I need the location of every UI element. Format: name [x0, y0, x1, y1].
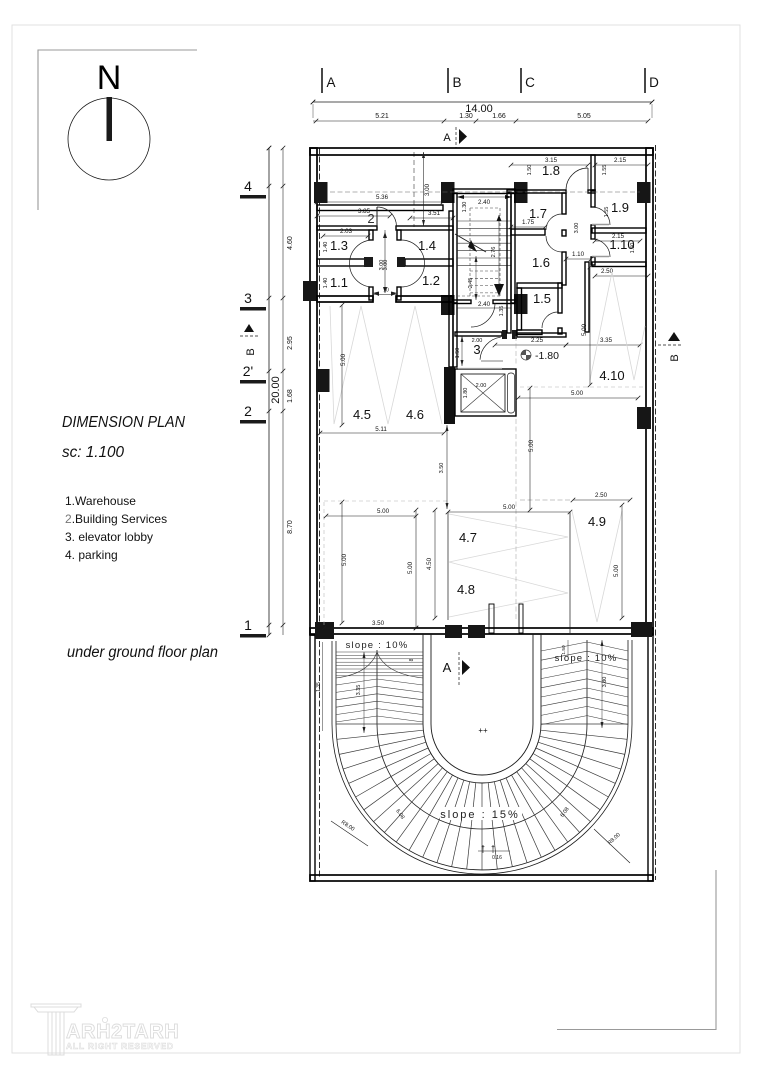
svg-text:B: B	[245, 348, 257, 355]
svg-text:5.00: 5.00	[528, 439, 535, 452]
svg-text:ARH2TARH: ARH2TARH	[66, 1021, 179, 1043]
svg-text:8: 8	[409, 658, 415, 661]
svg-text:3.35: 3.35	[356, 685, 362, 696]
svg-text:++: ++	[478, 726, 488, 735]
svg-text:3.50: 3.50	[439, 463, 445, 474]
svg-text:2.95: 2.95	[287, 336, 294, 350]
svg-text:slope : 10%: slope : 10%	[346, 640, 409, 651]
svg-text:2.00: 2.00	[472, 338, 483, 344]
svg-text:5.00: 5.00	[341, 553, 348, 566]
svg-text:1.30: 1.30	[459, 113, 473, 120]
svg-text:4.9: 4.9	[588, 514, 606, 529]
svg-text:2.Building Services: 2.Building Services	[65, 512, 167, 526]
svg-text:slope : 15%: slope : 15%	[440, 809, 519, 821]
svg-text:3.00: 3.00	[383, 260, 389, 271]
svg-text:1.40: 1.40	[323, 242, 329, 253]
svg-text:3: 3	[473, 342, 480, 357]
svg-text:1.5: 1.5	[533, 291, 551, 306]
svg-text:2.25: 2.25	[531, 337, 544, 344]
svg-text:1.50: 1.50	[561, 645, 567, 655]
svg-text:B: B	[669, 354, 681, 361]
svg-text:A: A	[443, 660, 452, 675]
svg-text:2.45: 2.45	[468, 278, 474, 289]
svg-text:2.15: 2.15	[612, 233, 625, 240]
svg-text:5.00: 5.00	[377, 508, 390, 515]
svg-text:2.40: 2.40	[478, 301, 491, 308]
svg-text:1.35: 1.35	[316, 682, 322, 692]
svg-text:4.50: 4.50	[426, 557, 433, 570]
svg-text:N: N	[97, 59, 122, 97]
svg-text:1.1: 1.1	[330, 275, 348, 290]
svg-text:A: A	[443, 132, 451, 144]
svg-text:3. elevator lobby: 3. elevator lobby	[65, 530, 153, 544]
svg-text:2.03: 2.03	[340, 228, 353, 235]
svg-text:A: A	[326, 75, 335, 90]
svg-text:2.76: 2.76	[491, 247, 497, 258]
svg-text:10: 10	[383, 288, 389, 294]
svg-text:4.5: 4.5	[353, 407, 371, 422]
svg-text:3: 3	[244, 290, 252, 306]
svg-text:2.50: 2.50	[595, 492, 608, 499]
svg-text:4. parking: 4. parking	[65, 548, 118, 562]
svg-text:3.50: 3.50	[372, 620, 385, 627]
svg-text:1.3: 1.3	[330, 238, 348, 253]
svg-text:+: +	[491, 845, 495, 851]
svg-text:5.00: 5.00	[340, 353, 347, 366]
svg-text:1.40: 1.40	[323, 278, 329, 289]
svg-text:1.50: 1.50	[527, 165, 533, 176]
svg-text:8.70: 8.70	[287, 520, 294, 534]
svg-text:3.00: 3.00	[424, 183, 431, 196]
svg-text:5.36: 5.36	[376, 194, 389, 201]
svg-text:ALL RIGHT RESERVED: ALL RIGHT RESERVED	[66, 1041, 174, 1051]
svg-text:3.80: 3.80	[602, 677, 608, 688]
svg-text:5.21: 5.21	[375, 113, 389, 120]
svg-text:5.11: 5.11	[375, 426, 387, 433]
svg-text:-1.80: -1.80	[535, 350, 559, 362]
svg-text:3.51: 3.51	[428, 210, 441, 217]
svg-text:1.9: 1.9	[611, 200, 629, 215]
svg-text:3.85: 3.85	[358, 208, 371, 215]
svg-text:1.55: 1.55	[602, 165, 608, 176]
svg-text:3.35: 3.35	[600, 337, 613, 344]
svg-text:20.00: 20.00	[270, 376, 282, 404]
svg-text:1.68: 1.68	[287, 389, 294, 403]
svg-text:C: C	[525, 75, 535, 90]
svg-text:sc: 1.100: sc: 1.100	[62, 444, 124, 461]
svg-text:3.15: 3.15	[545, 157, 558, 164]
svg-text:5.00: 5.00	[581, 323, 588, 336]
svg-text:4.7: 4.7	[459, 530, 477, 545]
svg-text:1.75: 1.75	[522, 219, 535, 226]
svg-text:1.35: 1.35	[499, 306, 505, 317]
svg-text:1.50: 1.50	[455, 348, 461, 359]
svg-text:0.16: 0.16	[492, 855, 502, 861]
svg-text:5.05: 5.05	[577, 113, 591, 120]
svg-text:1.50: 1.50	[630, 243, 636, 254]
svg-text:1.2: 1.2	[422, 273, 440, 288]
svg-text:1.66: 1.66	[492, 113, 506, 120]
svg-text:1.80: 1.80	[463, 388, 469, 399]
svg-text:1.55: 1.55	[604, 207, 610, 218]
svg-text:B: B	[452, 75, 461, 90]
svg-text:D: D	[649, 75, 659, 90]
svg-text:1.30: 1.30	[462, 202, 468, 213]
svg-text:4: 4	[244, 178, 252, 194]
svg-text:5.00: 5.00	[571, 390, 584, 397]
svg-text:DIMENSION PLAN: DIMENSION PLAN	[62, 414, 186, 431]
svg-text:1.Warehouse: 1.Warehouse	[65, 494, 136, 508]
svg-text:1.10: 1.10	[572, 251, 585, 258]
svg-text:2.00: 2.00	[476, 383, 487, 389]
svg-text:1.6: 1.6	[532, 255, 550, 270]
svg-text:+: +	[481, 845, 485, 851]
svg-text:5.00: 5.00	[503, 504, 516, 511]
svg-text:under ground floor plan: under ground floor plan	[67, 644, 218, 661]
svg-text:4.10: 4.10	[599, 368, 624, 383]
svg-text:4.6: 4.6	[406, 407, 424, 422]
svg-text:3.00: 3.00	[574, 223, 580, 234]
svg-text:2.15: 2.15	[614, 157, 627, 164]
svg-text:5.00: 5.00	[407, 561, 414, 574]
svg-text:5.00: 5.00	[613, 564, 620, 577]
svg-text:2.40: 2.40	[478, 199, 491, 206]
svg-text:1: 1	[244, 617, 252, 633]
svg-text:4.60: 4.60	[287, 236, 294, 250]
svg-text:4.8: 4.8	[457, 582, 475, 597]
svg-text:2: 2	[244, 403, 252, 419]
svg-text:2': 2'	[243, 363, 253, 379]
